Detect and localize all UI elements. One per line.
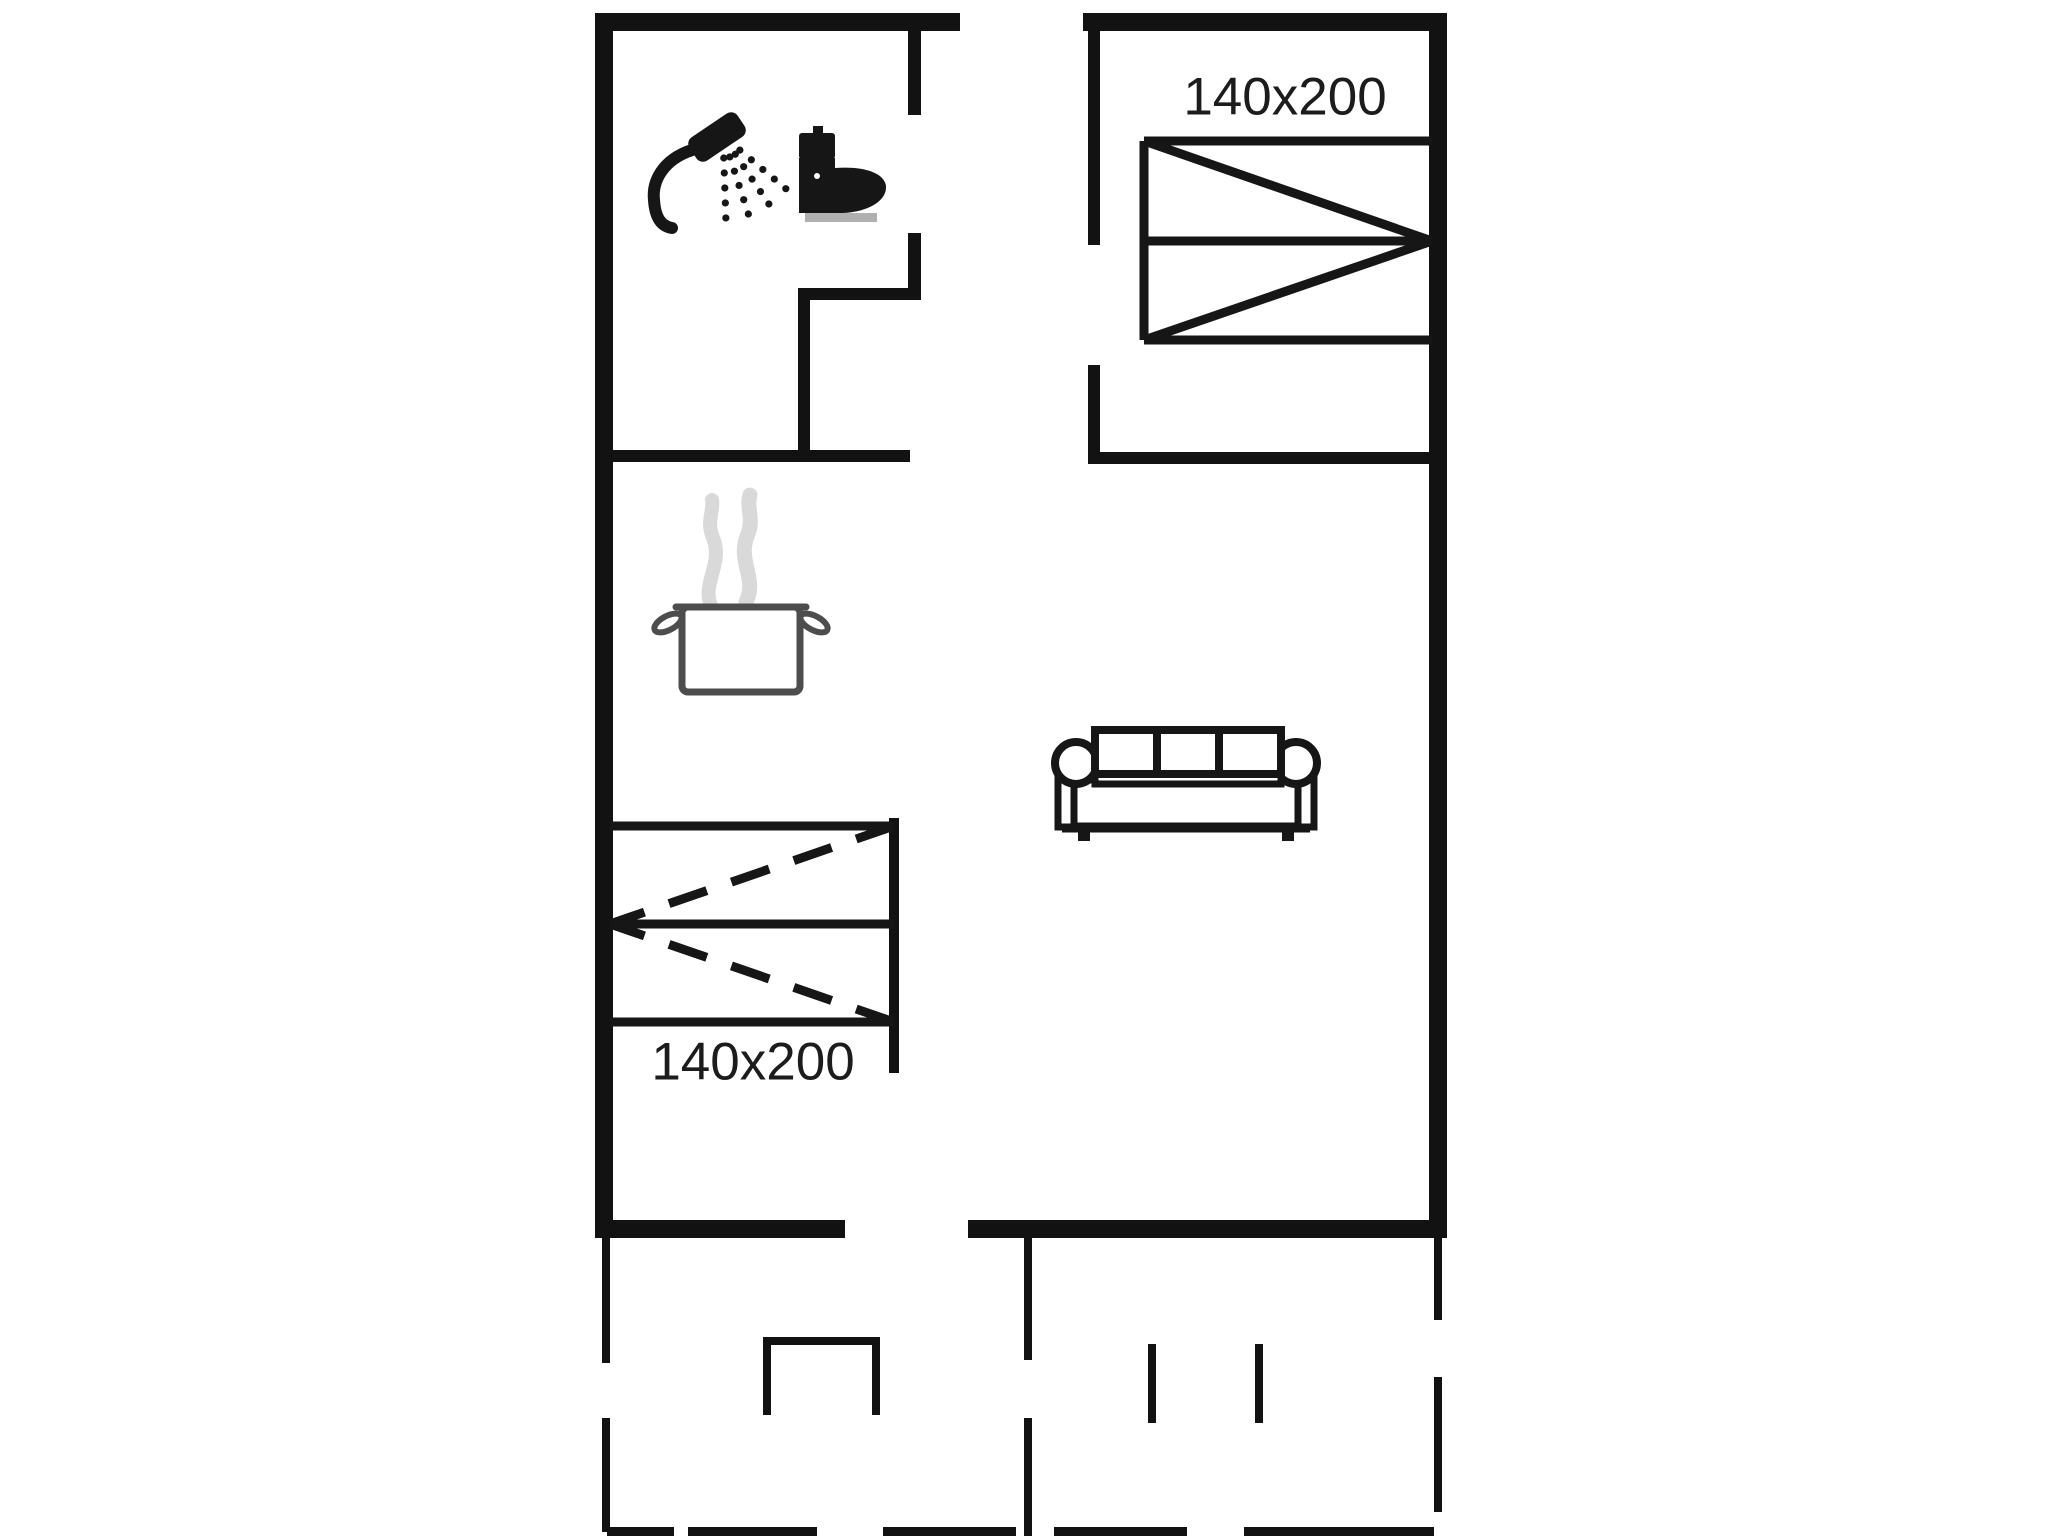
water-drop — [740, 163, 747, 170]
floor-plan-page: 140x200140x200 — [0, 0, 2048, 1536]
terrace-boundary-dash-5 — [1244, 1527, 1434, 1536]
toilet-tank-dot — [814, 173, 820, 179]
terrace-fence-left-lower — [602, 1418, 610, 1532]
terrace-fence-left-upper — [602, 1238, 610, 1363]
water-drop — [740, 196, 747, 203]
outer-wall-top-left — [595, 13, 960, 31]
water-drop — [745, 210, 752, 217]
toilet-bowl — [835, 168, 886, 213]
sofa-icon — [1055, 730, 1317, 841]
terrace-post-right — [1255, 1344, 1263, 1423]
outer-wall-left — [595, 13, 613, 1238]
shower-icon — [654, 109, 790, 228]
sofa-armrest — [1055, 742, 1097, 784]
bed-line — [610, 924, 894, 1022]
water-drop — [731, 168, 738, 175]
water-drop — [726, 153, 733, 160]
sofa-cushion — [1095, 730, 1157, 774]
living-room-wall-bottom-left — [595, 1220, 845, 1238]
bed-line — [610, 826, 894, 924]
bed-size-label-alcove: 140x200 — [651, 1033, 854, 1092]
water-drop — [720, 154, 727, 161]
water-drop — [722, 214, 729, 221]
bedroom-wall-bottom — [1088, 452, 1447, 464]
alcove-double-bed — [610, 826, 894, 1022]
water-drop — [771, 175, 778, 182]
water-drop — [735, 182, 742, 189]
water-drop — [759, 166, 766, 173]
terrace-boundary-dash-2 — [688, 1527, 817, 1536]
sofa-foot — [1282, 830, 1294, 841]
water-drop — [721, 184, 728, 191]
terrace-boundary-dash-1 — [607, 1527, 674, 1536]
bedroom-double-bed — [1144, 141, 1432, 340]
terrace-divider-fence-upper — [1024, 1238, 1032, 1360]
bathroom-inner-wall-vertical — [798, 300, 810, 452]
bed-line — [1144, 141, 1432, 241]
steam-plume — [709, 500, 716, 608]
outer-wall-right — [1429, 13, 1447, 1238]
terrace-divider-fence-lower — [1024, 1418, 1032, 1536]
terrace-boundary-dash-4 — [1054, 1527, 1187, 1536]
entrance-step-left-leg — [763, 1337, 771, 1415]
steam-plume — [744, 495, 750, 602]
entrance-step-right-leg — [872, 1337, 880, 1415]
pot-body — [682, 607, 800, 692]
cooking-pot-icon — [651, 495, 830, 692]
terrace-fence-right-upper — [1434, 1238, 1442, 1320]
water-drop — [748, 156, 755, 163]
toilet-tank — [799, 133, 835, 159]
floor-plan: 140x200140x200 — [0, 0, 2048, 1536]
terrace-post-left — [1148, 1344, 1156, 1423]
bathroom-inner-wall-horizontal — [798, 288, 921, 300]
bed-line — [1144, 241, 1432, 340]
bed-size-label-bedroom: 140x200 — [1183, 68, 1386, 127]
shower-hose — [654, 150, 692, 228]
toilet-base — [805, 213, 877, 222]
kitchen-divider-wall — [600, 450, 910, 462]
bathroom-wall-right-upper — [908, 31, 921, 115]
outer-wall-top-right — [1083, 13, 1447, 31]
toilet-icon — [799, 126, 886, 222]
living-room-wall-bottom-right — [968, 1220, 1447, 1238]
entrance-step-top-bar — [763, 1337, 880, 1345]
water-drop — [748, 176, 755, 183]
water-drop — [782, 185, 789, 192]
sofa-cushion — [1219, 730, 1281, 774]
toilet-body — [799, 158, 835, 213]
water-drop — [757, 188, 764, 195]
bed-alcove-partition — [889, 818, 899, 1073]
bedroom-wall-left-upper — [1088, 31, 1100, 245]
water-drop — [721, 169, 728, 176]
terrace-boundary-dash-3 — [883, 1527, 1016, 1536]
sofa-foot — [1078, 830, 1090, 841]
water-drop — [722, 199, 729, 206]
water-drop — [765, 200, 772, 207]
bedroom-wall-left-lower — [1088, 365, 1100, 452]
sofa-cushion — [1157, 730, 1219, 774]
terrace-fence-right-lower — [1434, 1377, 1442, 1512]
shower-head — [685, 109, 749, 165]
